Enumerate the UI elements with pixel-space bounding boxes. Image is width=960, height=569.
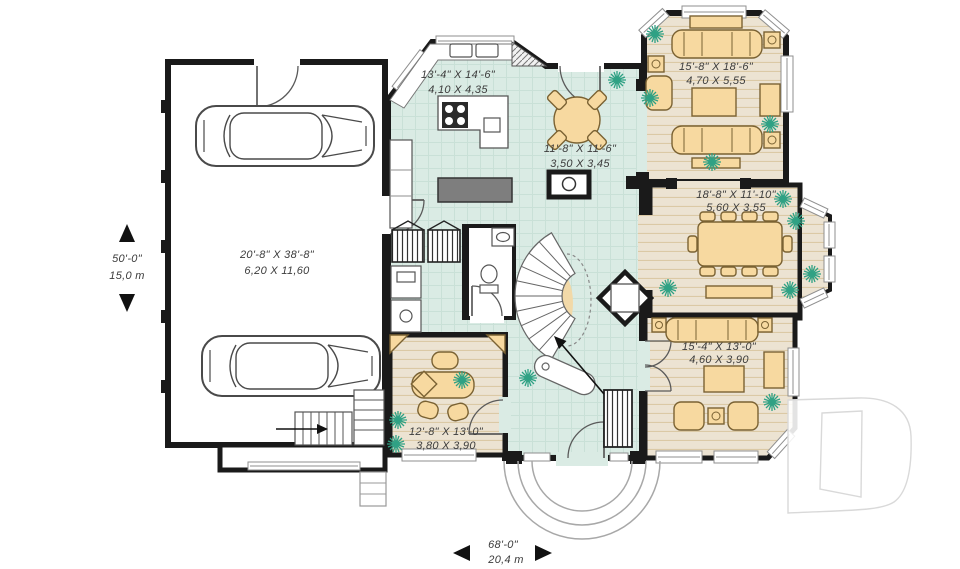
car-icon [202, 336, 380, 396]
bay-window [800, 202, 830, 304]
nook-dim-metric: 3,50 X 3,45 [550, 158, 610, 170]
entry-porch [504, 461, 660, 539]
pantry [512, 42, 546, 66]
side-table [648, 56, 664, 72]
sink-icon [450, 44, 472, 57]
depth-imperial: 50'-0" [112, 253, 143, 265]
closet [428, 230, 460, 262]
dining-dim-imperial: 18'-8" X 11'-10" [696, 189, 776, 201]
up-arrow-icon [119, 224, 135, 242]
office-dim-metric: 3,80 X 3,90 [416, 440, 476, 452]
dining-dim-metric: 5,60 X 3,55 [706, 202, 766, 214]
nook-dim-imperial: 11'-8" X 11'-6" [544, 143, 617, 155]
left-arrow-icon [453, 545, 470, 561]
sink-icon [476, 44, 498, 57]
cabinet [760, 84, 780, 116]
family-dim-metric: 4,60 X 3,90 [689, 354, 749, 366]
depth-metric: 15,0 m [109, 270, 144, 282]
side-table [708, 408, 724, 424]
side-table [652, 318, 666, 332]
armchair [674, 402, 704, 430]
sofa [672, 30, 762, 58]
side-table [764, 32, 780, 48]
width-imperial: 68'-0" [488, 539, 519, 551]
side-table [758, 318, 772, 332]
width-metric: 20,4 m [487, 554, 523, 566]
car-icon [196, 106, 374, 166]
cooktop-icon [442, 102, 468, 128]
dimension-left: 50'-0" 15,0 m [109, 224, 144, 312]
sofa [666, 318, 758, 342]
office-dim-imperial: 12'-8" X 13'-0" [409, 426, 484, 438]
down-arrow-icon [119, 294, 135, 312]
dimension-bottom: 68'-0" 20,4 m [453, 539, 552, 566]
counter [438, 178, 512, 202]
coffee-table [692, 88, 736, 116]
living-dim-metric: 4,70 X 5,55 [686, 75, 746, 87]
breakfast-nook-room [546, 89, 607, 150]
side-steps [360, 472, 386, 506]
floor-plan-canvas: 20'-8" X 38'-8" 6,20 X 11,60 13'-4" X 14… [0, 0, 960, 569]
kitchen-dim-imperial: 13'-4" X 14'-6" [421, 69, 496, 81]
sideboard [706, 286, 772, 298]
toilet-icon [481, 265, 497, 283]
side-table [764, 132, 780, 148]
cabinet [764, 352, 784, 388]
armchair [728, 402, 758, 430]
family-dim-imperial: 15'-4" X 13'-0" [682, 341, 757, 353]
garage-dim-metric: 6,20 X 11,60 [244, 265, 310, 277]
closet [604, 390, 632, 447]
watermark-d-logo [788, 398, 911, 513]
floor-plan-page: 20'-8" X 38'-8" 6,20 X 11,60 13'-4" X 14… [0, 0, 960, 569]
console-table [690, 16, 742, 28]
living-dim-imperial: 15'-8" X 18'-6" [679, 61, 754, 73]
closet [392, 230, 424, 262]
sofa [672, 126, 762, 154]
garage-dim-imperial: 20'-8" X 38'-8" [239, 249, 315, 261]
kitchen-dim-metric: 4,10 X 4,35 [428, 84, 488, 96]
coffee-table [704, 366, 744, 392]
right-arrow-icon [535, 545, 552, 561]
office-chair [432, 352, 458, 369]
dining-table [698, 222, 782, 266]
